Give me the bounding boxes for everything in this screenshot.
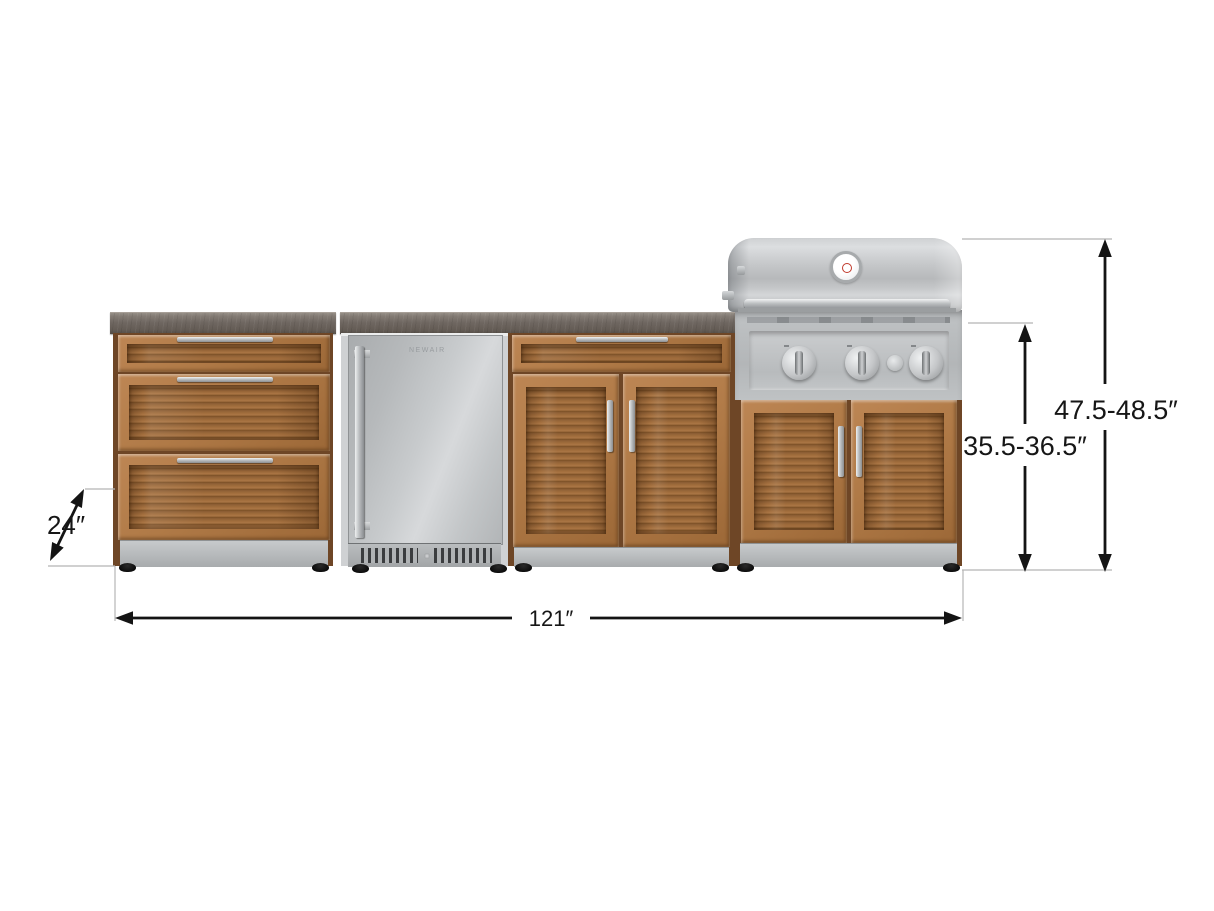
extension-lines [48,239,1112,621]
counter-height-dimension-label: 35.5-36.5″ [957,431,1093,462]
overall-height-dimension-label: 47.5-48.5″ [1048,395,1184,426]
product-dimension-diagram: NEWAIR [0,0,1214,911]
width-dimension-label: 121″ [511,606,591,632]
depth-dimension-label: 24″ [38,510,94,541]
